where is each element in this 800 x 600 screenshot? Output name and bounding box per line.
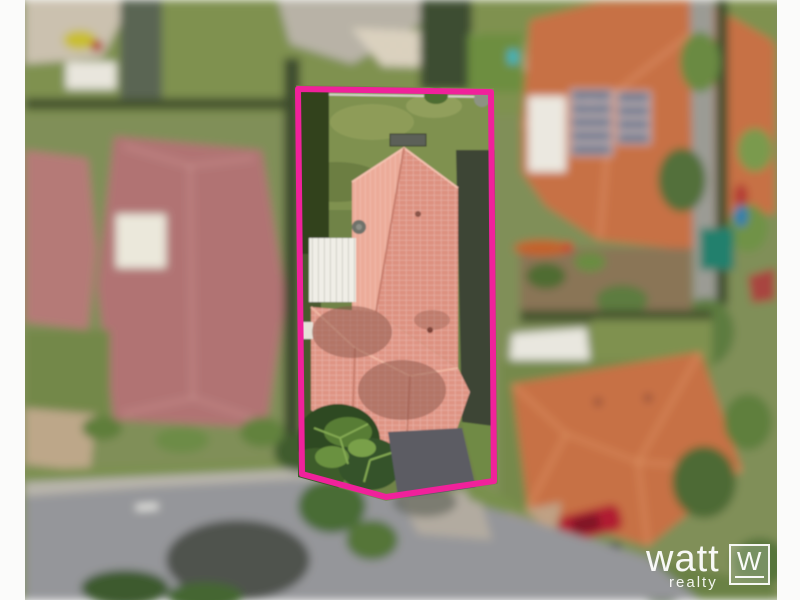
- tree: [658, 148, 706, 212]
- carport-corrugation: [309, 238, 356, 302]
- tree: [680, 32, 720, 92]
- street-tree: [346, 520, 398, 560]
- street-tree: [155, 427, 209, 453]
- left-white-shed-roof: [116, 214, 166, 268]
- tree: [672, 446, 736, 518]
- slide-end: [563, 242, 573, 252]
- photo-margin-left: [0, 0, 25, 600]
- far-left-roof: [25, 150, 97, 330]
- subject-property: [286, 85, 498, 501]
- red-object: [91, 40, 103, 52]
- watermark-monogram-box: W: [729, 544, 770, 585]
- watermark-underline: [735, 576, 764, 578]
- parked-car-red: [734, 184, 748, 208]
- hedge-row-top: [25, 98, 300, 110]
- aerial-photo: watt realty W: [0, 0, 800, 600]
- bush: [526, 263, 566, 289]
- street-tree: [82, 416, 122, 440]
- tree: [724, 394, 772, 450]
- palm-shadow: [312, 306, 392, 358]
- photo-margin-right: [777, 0, 800, 600]
- tree: [737, 128, 773, 172]
- aerial-photo-canvas: [0, 0, 800, 600]
- parked-car-blue: [734, 205, 748, 227]
- left-driveway: [25, 408, 96, 472]
- orange-slide: [514, 240, 570, 256]
- tree-shadow-band: [120, 0, 162, 98]
- watermark-logo: watt realty W: [646, 540, 770, 590]
- street-tree: [240, 417, 284, 447]
- watermark-tagline: realty: [669, 575, 718, 590]
- satellite-dish: [352, 220, 366, 234]
- white-pergola: [528, 96, 566, 172]
- palm-shadow: [414, 310, 450, 330]
- watermark-monogram: W: [737, 546, 762, 577]
- garden-shed-box: [390, 134, 426, 146]
- roof-vent: [594, 398, 602, 406]
- roof-vent: [415, 211, 421, 217]
- dark-trees: [420, 0, 472, 90]
- left-lawn: [25, 330, 110, 416]
- roof-vent: [644, 394, 652, 402]
- turquoise-object: [508, 50, 518, 64]
- watermark-brand: watt: [646, 540, 720, 578]
- watermark-wordmark: watt realty: [646, 540, 720, 590]
- palm-shadow: [358, 360, 446, 420]
- teal-shed: [700, 228, 734, 270]
- bush: [574, 252, 606, 272]
- white-shed: [66, 62, 116, 89]
